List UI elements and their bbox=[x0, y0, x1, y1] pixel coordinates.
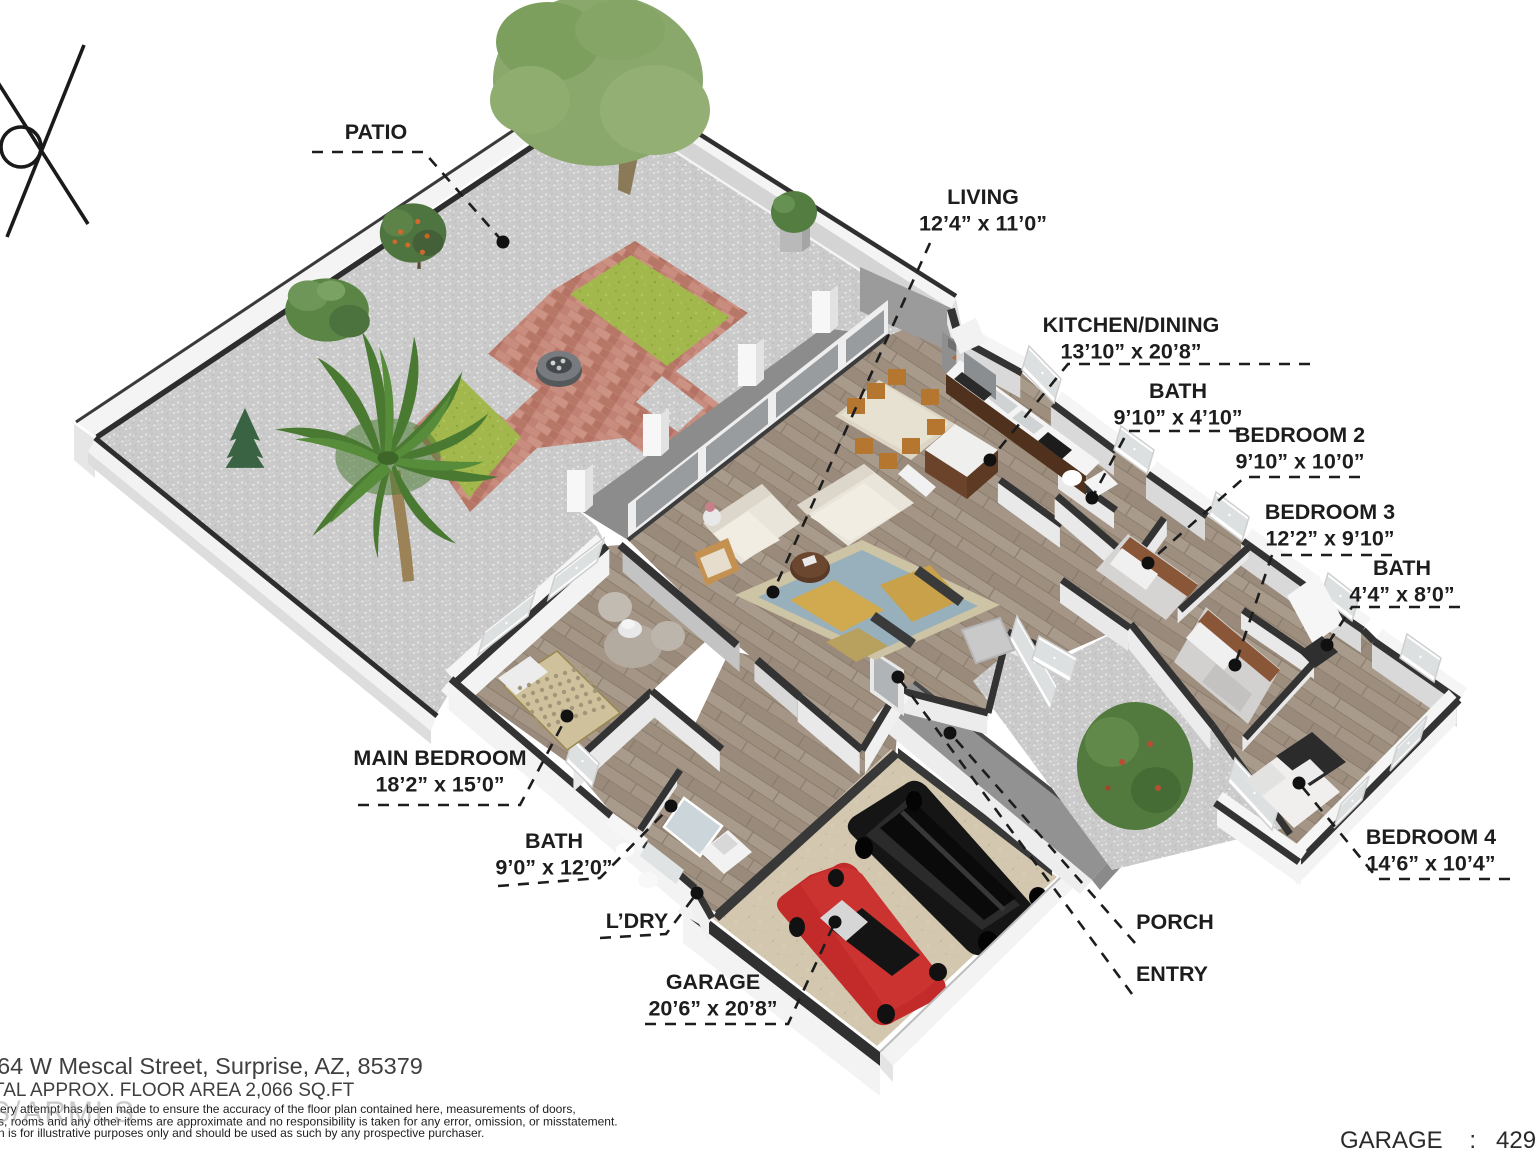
svg-text:BEDROOM 4: BEDROOM 4 bbox=[1366, 825, 1496, 849]
svg-text:9’10” x 4’10”: 9’10” x 4’10” bbox=[1113, 406, 1242, 430]
svg-text:PORCH: PORCH bbox=[1136, 910, 1214, 934]
svg-text:BATH: BATH bbox=[1149, 379, 1207, 403]
svg-text:4’4” x 8’0”: 4’4” x 8’0” bbox=[1349, 583, 1454, 607]
svg-text:BATH: BATH bbox=[1373, 556, 1431, 580]
svg-text:LIVING: LIVING bbox=[947, 185, 1019, 209]
svg-text:PATIO: PATIO bbox=[345, 120, 408, 144]
svg-text:GARAGE: GARAGE bbox=[666, 970, 760, 994]
svg-text:BEDROOM 2: BEDROOM 2 bbox=[1235, 423, 1365, 447]
svg-text:13’10” x 20’8”: 13’10” x 20’8” bbox=[1060, 340, 1201, 364]
svg-text:12’4” x 11’0”: 12’4” x 11’0” bbox=[919, 212, 1047, 236]
svg-text:BATH: BATH bbox=[525, 829, 583, 853]
svg-text:BEDROOM 3: BEDROOM 3 bbox=[1265, 500, 1395, 524]
svg-text:364 W Mescal Street, Surprise,: 364 W Mescal Street, Surprise, AZ, 85379 bbox=[0, 1053, 423, 1079]
svg-text:14’6” x 10’4”: 14’6” x 10’4” bbox=[1366, 852, 1495, 876]
svg-text:MAIN BEDROOM: MAIN BEDROOM bbox=[353, 746, 526, 770]
svg-text:12’2” x 9’10”: 12’2” x 9’10” bbox=[1265, 527, 1394, 551]
svg-text:L’DRY: L’DRY bbox=[606, 909, 669, 933]
svg-text:9’10” x 10’0”: 9’10” x 10’0” bbox=[1235, 450, 1364, 474]
svg-text:S/ARMLS: S/ARMLS bbox=[0, 1096, 136, 1129]
svg-text:9’0” x 12’0”: 9’0” x 12’0” bbox=[495, 856, 612, 880]
svg-text:18’2” x 15’0”: 18’2” x 15’0” bbox=[375, 773, 504, 797]
svg-text:20’6” x 20’8”: 20’6” x 20’8” bbox=[648, 997, 777, 1021]
svg-text:GARAGE : 429 S: GARAGE : 429 S bbox=[1340, 1127, 1536, 1152]
svg-text:ENTRY: ENTRY bbox=[1136, 962, 1208, 986]
svg-text:KITCHEN/DINING: KITCHEN/DINING bbox=[1043, 313, 1220, 337]
